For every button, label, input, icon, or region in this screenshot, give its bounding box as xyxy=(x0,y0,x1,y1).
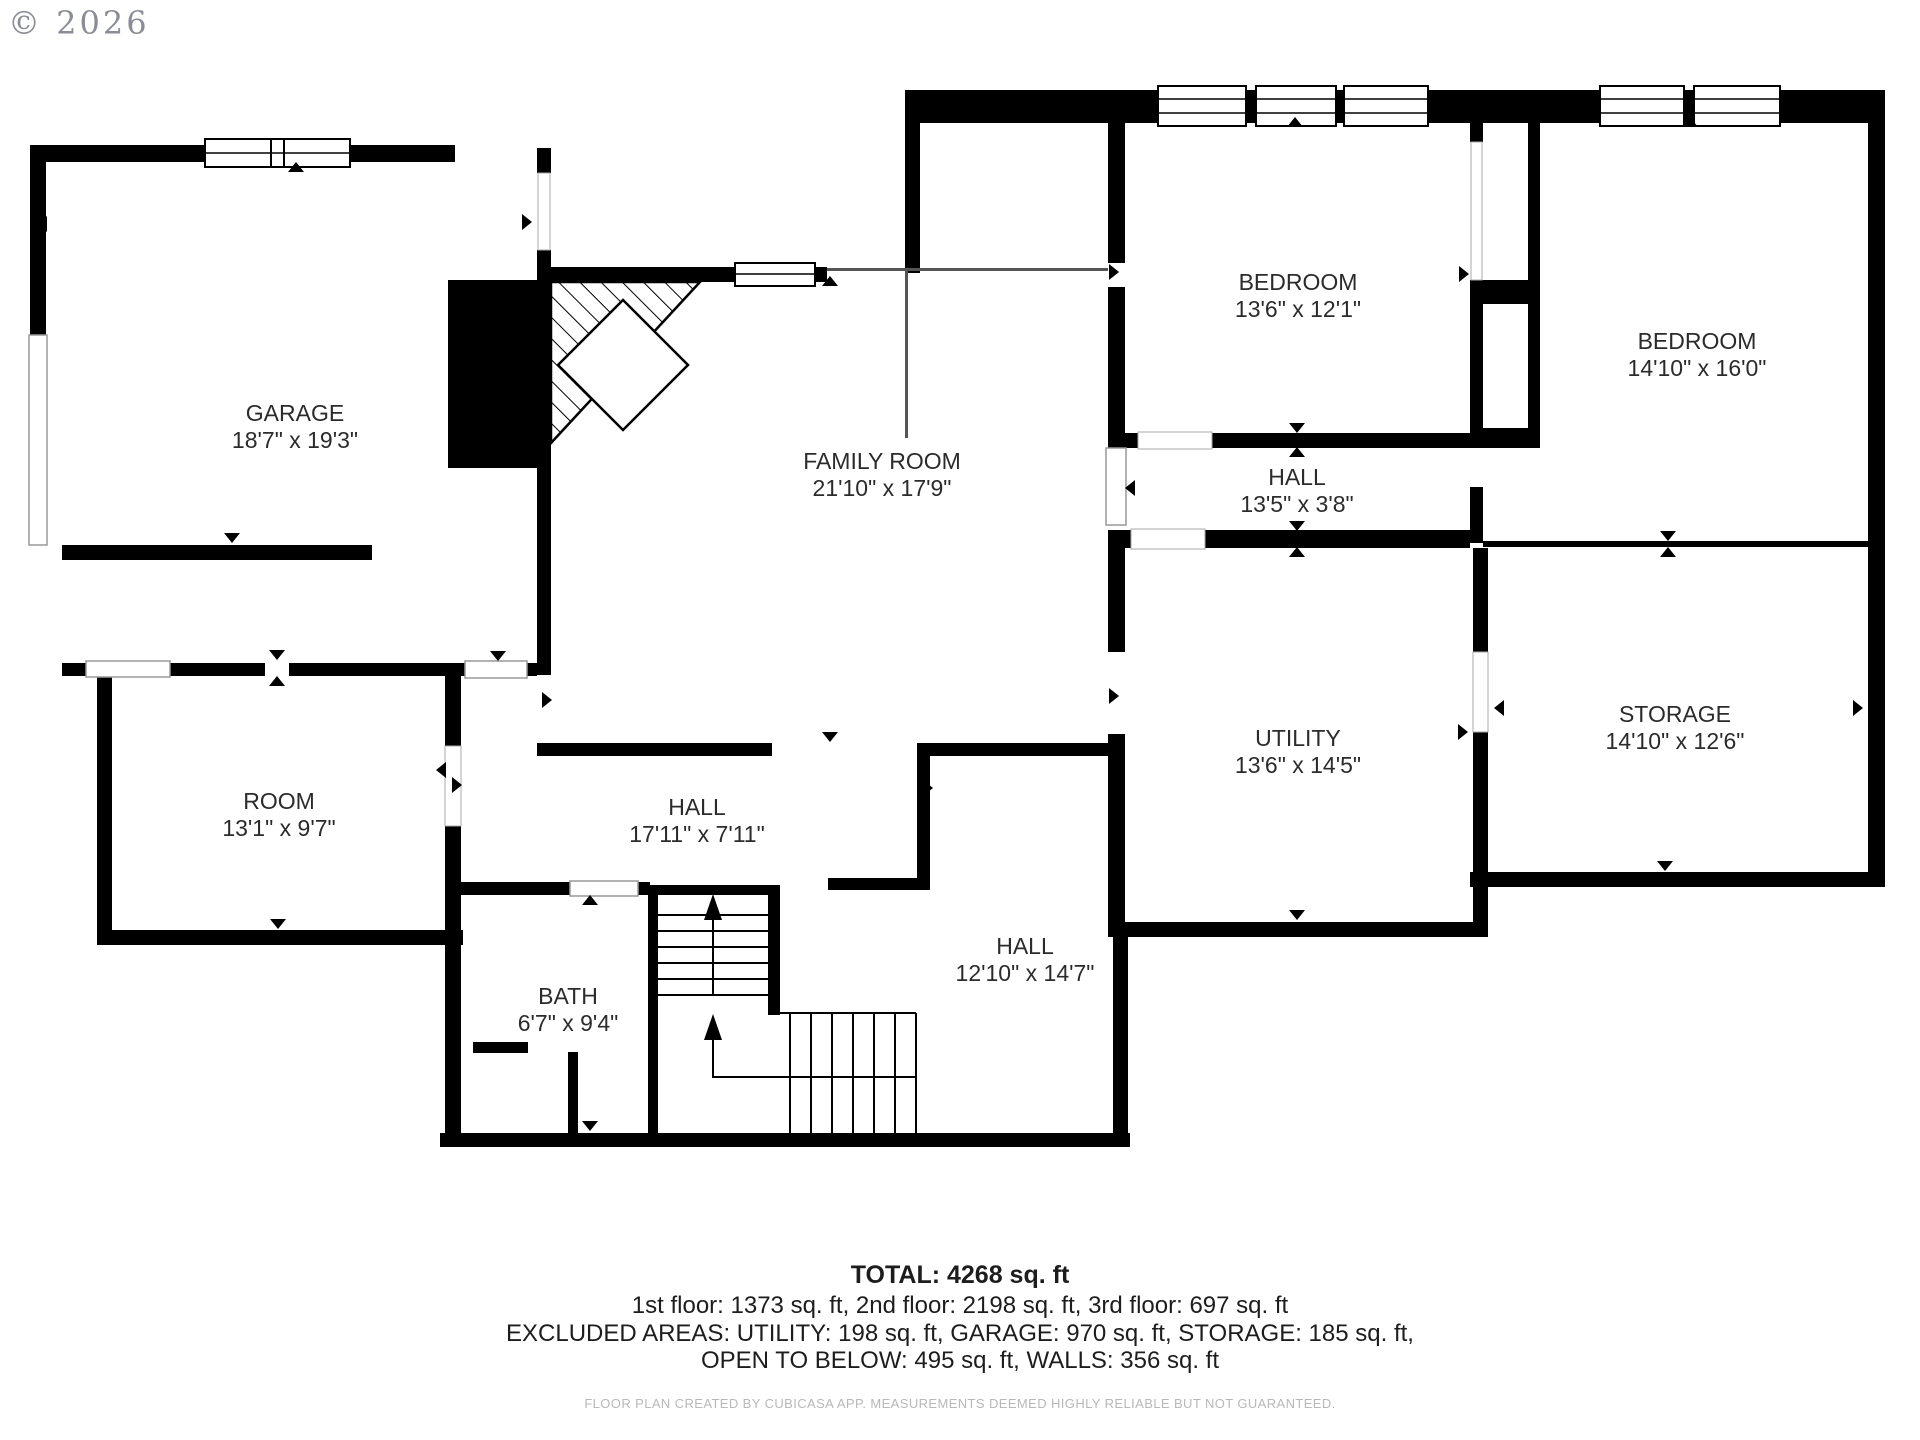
room-name: UTILITY xyxy=(1235,725,1361,752)
utility-bottom-wall xyxy=(1108,922,1488,937)
floorplan-page: © 2026 xyxy=(0,0,1920,1440)
closet-right-wall xyxy=(1528,112,1540,442)
marker-icon xyxy=(269,650,285,660)
stair-top-wall xyxy=(655,885,770,895)
closet-wall xyxy=(1470,112,1483,142)
room-dims: 6'7" x 9'4" xyxy=(518,1010,619,1037)
fireplace-icon xyxy=(448,280,547,468)
storage-top-line xyxy=(1483,541,1868,547)
disclaimer-text: FLOOR PLAN CREATED BY CUBICASA APP. MEAS… xyxy=(0,1396,1920,1411)
closet-wall xyxy=(1470,304,1483,430)
marker-icon xyxy=(582,1121,598,1131)
bath-partition xyxy=(568,1052,578,1137)
marker-icon xyxy=(1289,910,1305,920)
room-name: BEDROOM xyxy=(1628,328,1767,355)
closet-wall xyxy=(1470,487,1483,543)
utility-left-wall xyxy=(1108,548,1125,922)
bath-partition xyxy=(473,1042,528,1053)
family-room-window-icon xyxy=(735,263,815,286)
room-label-bath: BATH 6'7" x 9'4" xyxy=(518,983,619,1037)
room-name: FAMILY ROOM xyxy=(803,448,961,475)
hall-upper-window-icon xyxy=(1106,448,1126,525)
hall-lower-right-wall xyxy=(1113,937,1128,1137)
marker-icon xyxy=(1458,724,1468,740)
up-arrow-icon xyxy=(704,1014,722,1040)
excluded-areas-text: EXCLUDED AREAS: UTILITY: 198 sq. ft, GAR… xyxy=(0,1320,1920,1347)
room-name: HALL xyxy=(1240,464,1353,491)
marker-icon xyxy=(522,214,532,230)
room-dims: 13'5" x 3'8" xyxy=(1240,491,1353,518)
room-label-hall-main: HALL 17'11" x 7'11" xyxy=(629,794,765,848)
room-dims: 14'10" x 16'0" xyxy=(1628,355,1767,382)
garage-bottom-wall xyxy=(62,545,372,560)
total-area-text: TOTAL: 4268 sq. ft xyxy=(0,1262,1920,1289)
marker-icon xyxy=(1660,531,1676,541)
room-label-bedroom1: BEDROOM 13'6" x 12'1" xyxy=(1235,269,1361,323)
room-dims: 17'11" x 7'11" xyxy=(629,821,765,848)
marker-icon xyxy=(542,692,552,708)
room-label-storage: STORAGE 14'10" x 12'6" xyxy=(1606,701,1745,755)
marker-icon xyxy=(1289,521,1305,531)
marker-icon xyxy=(1289,547,1305,557)
room-label-family-room: FAMILY ROOM 21'10" x 17'9" xyxy=(803,448,961,502)
room-window-icon xyxy=(86,661,170,677)
open-area-left-wall xyxy=(905,90,920,273)
room-label-bedroom2: BEDROOM 14'10" x 16'0" xyxy=(1628,328,1767,382)
marker-icon xyxy=(269,676,285,686)
garage-side-window-icon xyxy=(29,335,47,545)
hall-upper-door-opening xyxy=(1138,432,1212,449)
marker-icon xyxy=(1459,266,1469,282)
room-dims: 18'7" x 19'3" xyxy=(232,427,358,454)
room-label-hall-lower: HALL 12'10" x 14'7" xyxy=(956,933,1095,987)
marker-icon xyxy=(1289,423,1305,433)
room-label-room: ROOM 13'1" x 9'7" xyxy=(222,788,335,842)
staircase xyxy=(658,915,916,1133)
west-outer-wall xyxy=(445,663,461,1133)
marker-icon xyxy=(1289,447,1305,457)
marker-icon xyxy=(270,919,286,929)
room-label-utility: UTILITY 13'6" x 14'5" xyxy=(1235,725,1361,779)
open-to-below-railing xyxy=(827,268,1108,438)
room-name: HALL xyxy=(956,933,1095,960)
bath-window-icon xyxy=(570,881,638,896)
room-name: BATH xyxy=(518,983,619,1010)
stair-hall-wall xyxy=(828,878,930,890)
hall-lower-top-wall xyxy=(920,743,1113,756)
marker-icon xyxy=(436,762,446,778)
room-name: ROOM xyxy=(222,788,335,815)
stair-right-wall xyxy=(768,885,780,1015)
hearth xyxy=(551,282,700,443)
closet-door-opening xyxy=(1471,142,1482,280)
room-name: GARAGE xyxy=(232,400,358,427)
room-dims: 12'10" x 14'7" xyxy=(956,960,1095,987)
south-outer-wall xyxy=(440,1133,1130,1147)
garage-right-wall-stub xyxy=(537,148,551,173)
storage-bottom-wall xyxy=(1470,872,1885,887)
family-room-bottom-wall xyxy=(537,743,772,756)
garage-left-wall xyxy=(30,145,46,335)
room-dims: 14'10" x 12'6" xyxy=(1606,728,1745,755)
hall-lower-left-wall xyxy=(917,743,930,890)
vestibule-window-icon xyxy=(465,661,527,678)
room-door-opening xyxy=(265,662,289,677)
marker-icon xyxy=(1660,547,1676,557)
floor-areas-text: 1st floor: 1373 sq. ft, 2nd floor: 2198 … xyxy=(0,1292,1920,1319)
room-name: HALL xyxy=(629,794,765,821)
room-name: STORAGE xyxy=(1606,701,1745,728)
room-dims: 21'10" x 17'9" xyxy=(803,475,961,502)
hall-upper-door-opening xyxy=(1131,529,1205,549)
room-dims: 13'6" x 14'5" xyxy=(1235,752,1361,779)
stair-left-wall xyxy=(648,885,658,1137)
utility-door-opening xyxy=(1473,652,1488,732)
room-dims: 13'6" x 12'1" xyxy=(1235,296,1361,323)
east-outer-wall xyxy=(1868,90,1885,887)
railing-line xyxy=(827,268,1108,271)
marker-icon xyxy=(490,651,506,661)
room-left-wall xyxy=(97,663,112,945)
marker-icon xyxy=(822,732,838,742)
room-bottom-wall xyxy=(97,930,463,945)
railing-line xyxy=(905,268,908,438)
room-name: BEDROOM xyxy=(1235,269,1361,296)
marker-icon xyxy=(224,533,240,543)
marker-icon xyxy=(1853,700,1863,716)
marker-icon xyxy=(1494,700,1504,716)
thin-windows xyxy=(29,335,1126,896)
garage-window-icon xyxy=(205,139,350,167)
stair-direction-line xyxy=(713,1036,916,1077)
marker-icon xyxy=(1657,861,1673,871)
walls xyxy=(30,90,1885,1147)
room-dims: 13'1" x 9'7" xyxy=(222,815,335,842)
up-arrow-icon xyxy=(704,894,722,920)
room-label-hall-upper: HALL 13'5" x 3'8" xyxy=(1240,464,1353,518)
garage-door-opening xyxy=(538,173,550,250)
room-label-garage: GARAGE 18'7" x 19'3" xyxy=(232,400,358,454)
excluded-areas-text-2: OPEN TO BELOW: 495 sq. ft, WALLS: 356 sq… xyxy=(0,1347,1920,1374)
